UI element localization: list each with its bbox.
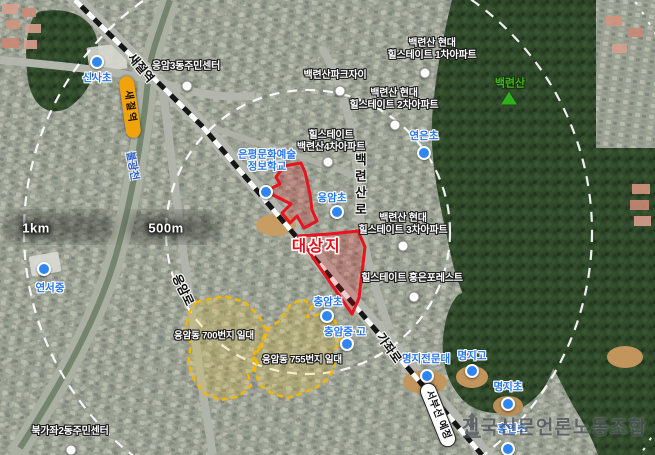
map-labels: 1km500m신사초연서중은평문화예술정보학교응암초연은초충암초충암중·고명지전…	[0, 0, 655, 455]
label-hillstate-hongeun-forest: 힐스테이트 홍은포레스트	[361, 273, 463, 285]
label-zone-755: 응암동 755번지 일대	[262, 354, 342, 365]
label-yeonseo-middle-marker	[37, 262, 51, 276]
label-parkxi: 백련산파크자이	[304, 70, 367, 82]
label-sinsa-elementary-marker	[90, 55, 104, 69]
label-bukgajwa2-community-center-marker	[66, 445, 77, 455]
label-saejeol-station-road: 새절역	[125, 51, 157, 85]
label-hillstate-1st-marker	[420, 68, 431, 79]
scale-label-500m: 500m	[148, 220, 183, 235]
label-gajwa-ro: 가좌로	[374, 330, 405, 365]
label-eungam3-community-center: 응암3동주민센터	[152, 61, 220, 73]
label-eungam-elementary-marker	[330, 205, 344, 219]
label-parkxi-marker	[335, 86, 346, 97]
label-myongji-elementary: 명지초	[494, 381, 523, 393]
label-yeoneun-elementary-marker	[417, 146, 431, 160]
label-baengnyeonsan-ro: 백련산로	[352, 153, 367, 219]
label-hillstate-2nd: 백련산 현대힐스테이트 2차아파트	[350, 88, 439, 112]
label-bulgwangcheon: 불광천	[123, 151, 140, 182]
label-eungam3-community-center-marker	[182, 81, 193, 92]
label-hillstate-hongeun-forest-marker	[409, 292, 420, 303]
label-zone-700: 응암동 700번지 일대	[174, 330, 254, 341]
label-eungam-ro: 응암로	[169, 272, 196, 308]
label-myongji-high-marker	[465, 364, 479, 378]
label-target-site: 대상지	[292, 238, 342, 256]
label-eunpyeong-arts-school-marker	[259, 185, 273, 199]
label-hillstate-4th-marker	[323, 157, 334, 168]
mountain-peak-marker	[501, 92, 517, 105]
label-yeonseo-middle: 연서중	[36, 282, 65, 294]
label-sinsa-elementary: 신사초	[83, 72, 112, 84]
label-chungam-middle-high: 충암중·고	[324, 326, 366, 338]
label-hongyeon-elementary: 홍연초	[498, 423, 527, 435]
seobu-line-pill: 서부선 예정	[417, 380, 458, 449]
label-hillstate-3rd-marker	[398, 241, 409, 252]
label-hillstate-1st: 백련산 현대힐스테이트 1차아파트	[388, 38, 477, 62]
label-myongji-high: 명지고	[458, 350, 487, 362]
label-chungam-middle-high-marker	[340, 337, 354, 351]
label-chungam-elementary: 충암초	[314, 296, 343, 308]
label-myongji-college: 명지전문대	[402, 353, 450, 365]
label-bukgajwa2-community-center: 북가좌2동주민센터	[31, 426, 108, 438]
label-myongji-elementary-marker	[501, 397, 515, 411]
label-myongji-college-marker	[420, 369, 434, 383]
saejeol-station-box: 새절역	[118, 75, 141, 138]
label-baengnyeonsan-peak: 백련산	[495, 78, 525, 91]
scale-label-1km: 1km	[22, 220, 50, 235]
label-hillstate-4th: 힐스테이트백련산4차아파트	[297, 130, 365, 154]
label-hongyeon-elementary-marker	[501, 442, 515, 455]
label-hillstate-3rd: 백련산 현대힐스테이트 3차아파트	[359, 213, 448, 237]
label-hillstate-2nd-marker	[390, 120, 401, 131]
label-chungam-elementary-marker	[320, 309, 334, 323]
label-yeoneun-elementary: 연은초	[410, 130, 439, 142]
satellite-map: 1km500m신사초연서중은평문화예술정보학교응암초연은초충암초충암중·고명지전…	[0, 0, 655, 455]
label-eunpyeong-arts-school: 은평문화예술정보학교	[238, 149, 296, 174]
label-eungam-elementary: 응암초	[318, 192, 347, 204]
